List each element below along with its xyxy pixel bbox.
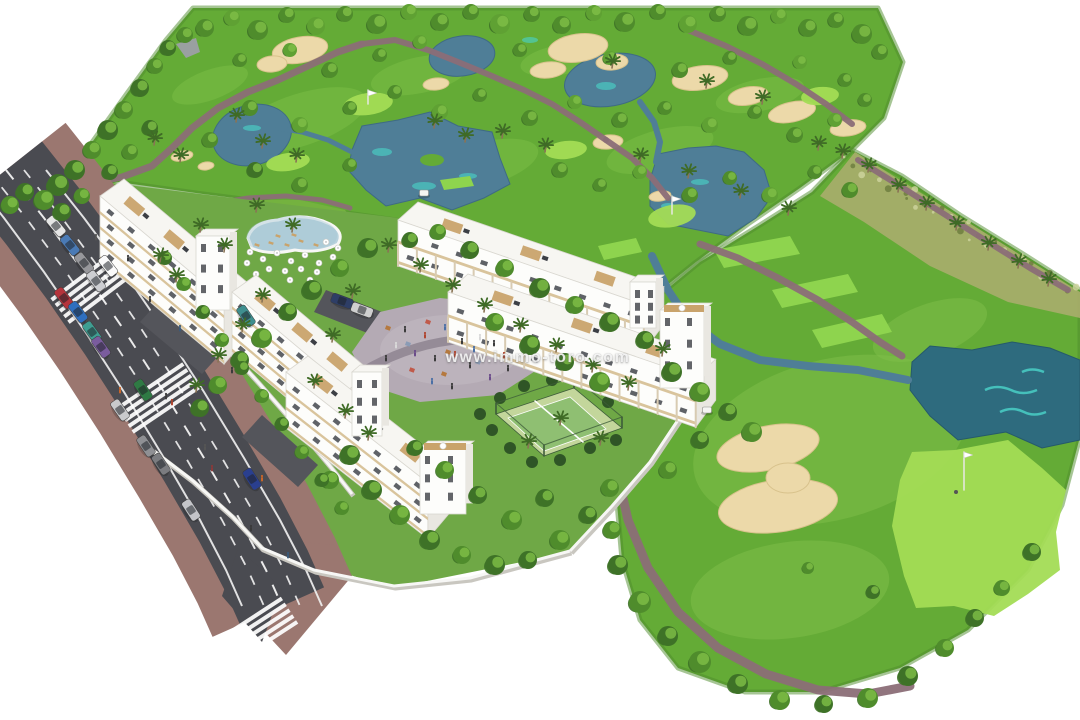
person [385,357,387,362]
person [507,367,509,372]
person [395,344,397,349]
person [414,352,416,357]
architectural-render: www.immo-toro.com [0,0,1080,720]
person [444,326,446,331]
parasol [679,305,685,311]
person [261,477,263,482]
person [127,257,129,262]
person [211,467,213,472]
person [461,340,463,345]
person [171,401,173,406]
person [493,342,495,347]
person [424,334,426,339]
person [250,527,252,532]
person [434,357,436,362]
parasol [440,443,446,449]
person [479,336,481,341]
person [231,369,233,374]
person [489,376,491,381]
person [149,298,151,303]
person [179,327,181,332]
person [119,389,121,394]
person [204,446,206,451]
stair-tower-block-3 [352,365,390,436]
golf-cart [420,190,429,196]
person [287,554,289,559]
person [451,385,453,390]
person [95,236,97,241]
watermark-text: www.immo-toro.com [446,349,631,367]
person [431,380,433,385]
golfer [954,490,958,494]
person [165,395,167,400]
person [404,328,406,333]
golf-cart [703,407,712,413]
